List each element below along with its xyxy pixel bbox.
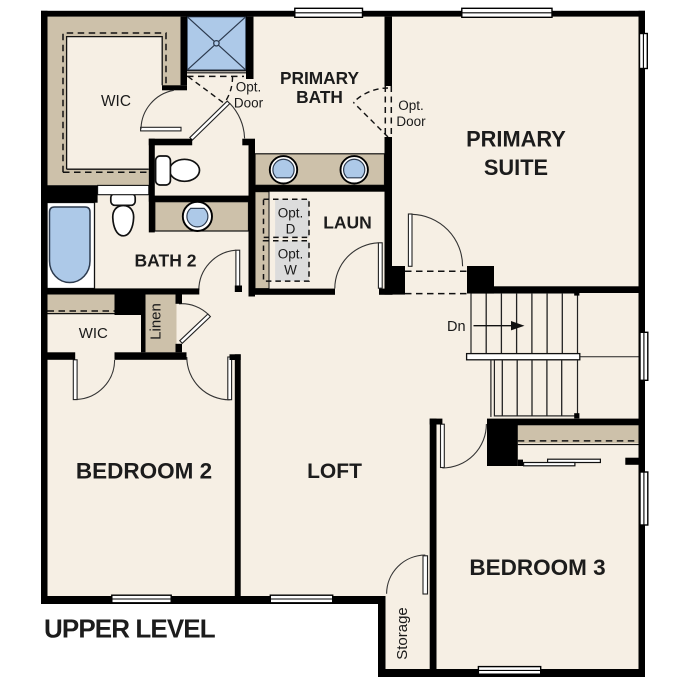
svg-text:Linen: Linen: [148, 303, 165, 340]
svg-text:Door: Door: [396, 114, 426, 129]
svg-text:BEDROOM 3: BEDROOM 3: [469, 555, 605, 580]
svg-text:UPPER LEVEL: UPPER LEVEL: [44, 614, 216, 644]
svg-text:Door: Door: [234, 96, 264, 111]
svg-text:BATH 2: BATH 2: [135, 251, 197, 271]
svg-text:Opt.: Opt.: [398, 98, 424, 113]
svg-text:PRIMARY: PRIMARY: [280, 68, 360, 88]
svg-text:Dn: Dn: [447, 319, 466, 335]
svg-text:PRIMARY: PRIMARY: [466, 127, 566, 152]
svg-text:WIC: WIC: [101, 93, 131, 110]
svg-text:LOFT: LOFT: [307, 460, 362, 483]
svg-text:BEDROOM 2: BEDROOM 2: [76, 459, 212, 484]
svg-text:SUITE: SUITE: [484, 155, 548, 180]
svg-text:LAUN: LAUN: [323, 213, 372, 233]
svg-text:W: W: [284, 263, 297, 278]
svg-text:Opt.: Opt.: [278, 247, 304, 262]
svg-text:Storage: Storage: [394, 607, 411, 660]
svg-text:D: D: [286, 222, 296, 237]
svg-text:BATH: BATH: [296, 87, 343, 107]
svg-text:Opt.: Opt.: [236, 80, 262, 95]
svg-text:WIC: WIC: [79, 325, 108, 342]
svg-text:Opt.: Opt.: [278, 206, 304, 221]
